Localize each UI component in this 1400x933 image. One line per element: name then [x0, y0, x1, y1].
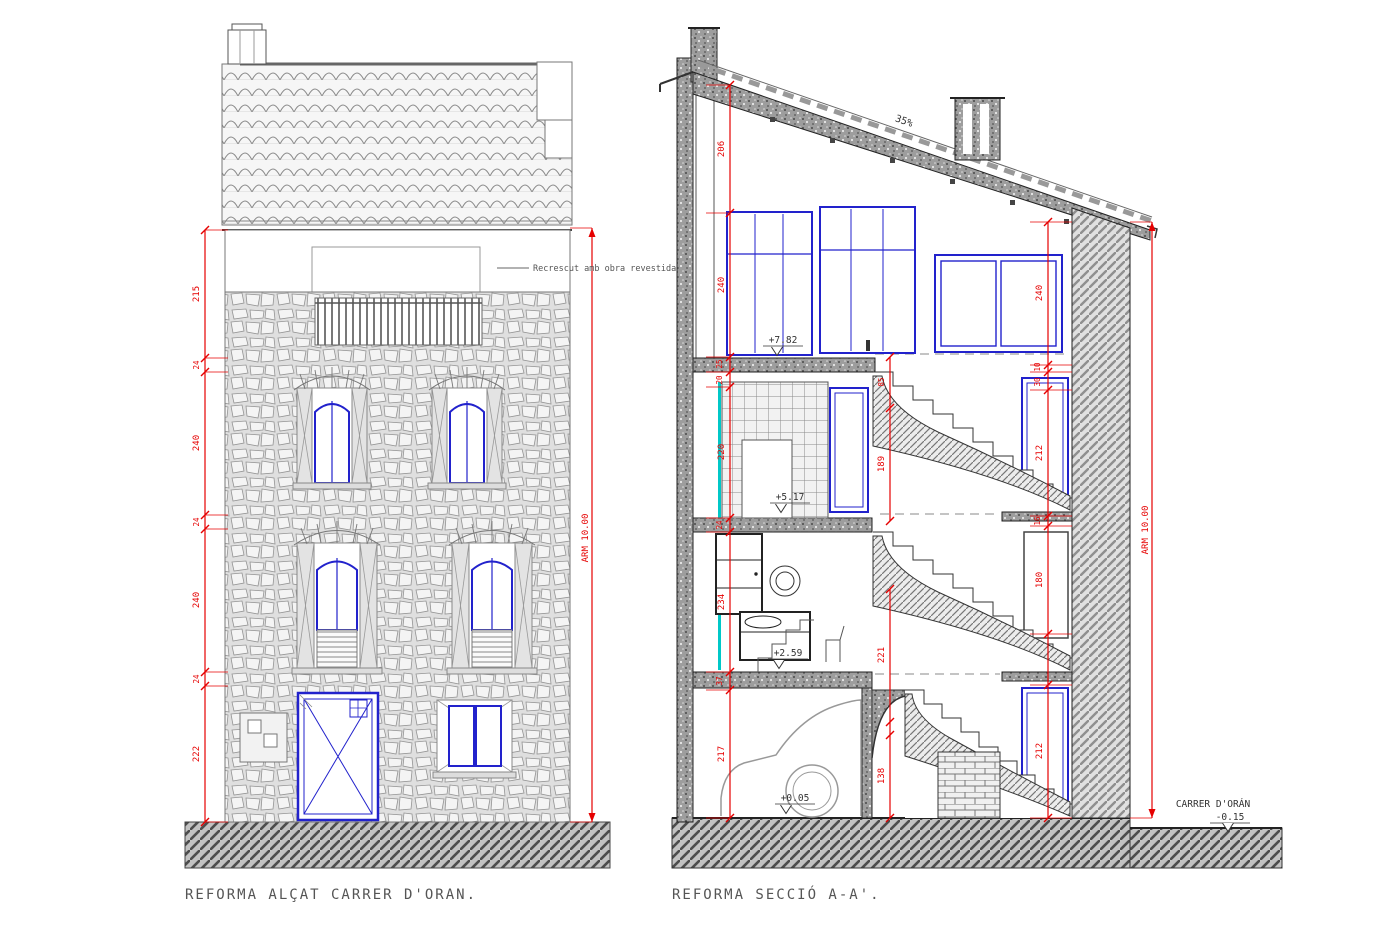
level-label: +7.82: [769, 335, 798, 346]
elevation-drawing: 215 24 240 24 240 24 222 ARM 10.00 Recre…: [185, 24, 676, 903]
balcony-railing: [315, 298, 482, 345]
garage-divider-wall: [862, 688, 872, 818]
dim-label: 221: [877, 647, 887, 663]
dim-label: 30: [1033, 377, 1042, 387]
dim-label: 24: [192, 360, 201, 370]
street-ground: [1130, 828, 1282, 868]
dim-label: 220: [717, 444, 727, 460]
skylight-window-left: [727, 212, 812, 355]
section-drawing: 35%: [660, 28, 1282, 903]
dim-label: 85: [877, 377, 886, 386]
dim-label: 25: [715, 359, 724, 368]
arm-label: ARM 10.00: [1141, 506, 1151, 555]
roof-slope-label: 35%: [893, 113, 914, 129]
roof-tiled: [222, 64, 572, 230]
dim-label: 37: [715, 676, 724, 685]
dim-label: 180: [1035, 572, 1045, 588]
washer-drum: [770, 566, 800, 596]
dim-label: 24: [192, 517, 201, 527]
skylight-window-center: [820, 207, 915, 353]
dim-label: 212: [1035, 743, 1045, 759]
window-top-right: [935, 255, 1062, 352]
window-ground-floor: [433, 700, 516, 778]
elevation-ground: [185, 822, 610, 868]
dim-label: 212: [1035, 445, 1045, 461]
dim-label: 24: [715, 520, 724, 530]
dim-label: 222: [192, 746, 202, 762]
chimney-elevation: [228, 24, 266, 64]
dim-label: 217: [717, 746, 727, 762]
dim-label: 240: [192, 435, 202, 451]
window-first-floor-left: [292, 521, 382, 674]
dim-label: 206: [717, 141, 727, 157]
section-dimension-chain-left: 206 240 25 20 220 24 234 37 217: [706, 81, 734, 822]
section-ground: [672, 818, 1130, 868]
dim-label: 10: [1033, 362, 1042, 372]
arm-dimension-elevation: ARM 10.00: [570, 228, 596, 822]
entry-door: [298, 693, 378, 820]
street-level: -0.15: [1216, 812, 1245, 823]
landing-slab-lower: [1002, 672, 1072, 681]
dim-label: 16: [1033, 516, 1042, 526]
dim-label: 240: [1035, 285, 1045, 301]
section-right-wall: [1072, 208, 1130, 818]
section-caption: REFORMA SECCIÓ A-A'.: [672, 885, 881, 903]
door-frame-mid-landing: [1024, 532, 1068, 638]
dim-label: 215: [192, 286, 202, 302]
facade-top-panel: [312, 247, 480, 292]
meter-box: [240, 713, 287, 762]
facade-note-text: Recrescut amb obra revestida: [533, 264, 676, 274]
street-name: CARRER D'ORÁN: [1176, 798, 1251, 810]
arm-dimension-section: ARM 10.00: [1130, 222, 1156, 818]
level-label: +0.05: [781, 793, 810, 804]
elevation-dimension-chain: 215 24 240 24 240 24 222: [192, 226, 228, 826]
elevation-caption: REFORMA ALÇAT CARRER D'ORAN.: [185, 887, 477, 903]
level-label: +2.59: [774, 648, 803, 659]
dim-label: 234: [717, 594, 727, 610]
street-label-group: CARRER D'ORÁN -0.15: [1176, 798, 1251, 832]
dim-label: 138: [877, 768, 887, 784]
brick-pillar: [938, 752, 1000, 818]
dim-label: 189: [877, 456, 887, 472]
dim-label: 240: [717, 277, 727, 293]
chimney-section-right: [950, 98, 1005, 160]
blueprint-canvas: 215 24 240 24 240 24 222 ARM 10.00 Recre…: [0, 0, 1400, 933]
arm-label: ARM 10.00: [581, 514, 591, 563]
section-left-wall: [677, 58, 693, 822]
dim-label: 240: [192, 592, 202, 608]
dim-label: 24: [192, 674, 201, 684]
blue-door-bathroom: [830, 388, 868, 512]
level-label: +5.17: [776, 492, 805, 503]
dim-label: 20: [715, 375, 724, 385]
chair-profile: [826, 626, 844, 662]
window-first-floor-right: [447, 521, 537, 674]
